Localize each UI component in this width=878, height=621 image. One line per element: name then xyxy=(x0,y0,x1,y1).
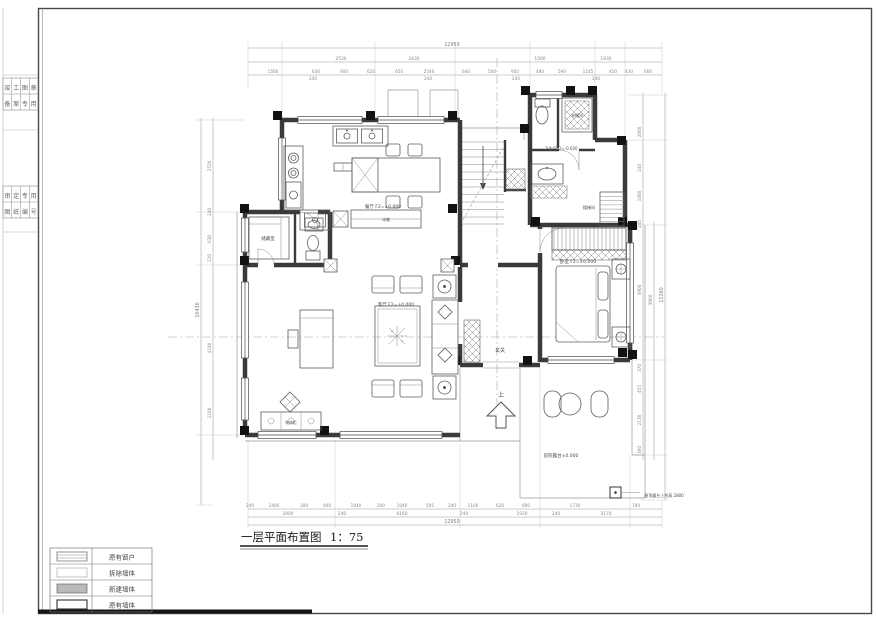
dim-text: 240 xyxy=(246,503,254,508)
stamp-char: 章 xyxy=(31,84,37,92)
stamp-char: 编 xyxy=(22,208,28,216)
dim-text: 505 xyxy=(426,503,434,508)
dim-text: 1930 xyxy=(516,511,527,517)
drawing-sheet: 竣工图章备案专用审定专用图纸编号 12950 2530263015001930 … xyxy=(0,0,878,621)
dim-text: 450 xyxy=(609,69,617,74)
dim-text: 240 xyxy=(637,220,642,228)
dim-text: 1145 xyxy=(583,69,594,74)
bed xyxy=(556,266,610,342)
dim-text: 300 xyxy=(300,503,308,508)
wardrobe xyxy=(552,228,626,250)
stair-main xyxy=(462,142,525,224)
terrace-table xyxy=(559,393,581,415)
dim-text: 900 xyxy=(340,69,348,74)
dim-text: 660 xyxy=(644,69,652,74)
shoe-cabinet xyxy=(464,320,480,362)
stamp-char: 专 xyxy=(22,192,28,200)
dim-text: 3900 xyxy=(637,284,642,295)
legend-label: 拆除墙体 xyxy=(109,569,136,578)
dim-top-total: 12950 xyxy=(444,42,459,48)
sofa xyxy=(432,300,458,374)
dim-text: 4160 xyxy=(396,511,407,517)
dim-text: 590 xyxy=(558,69,566,74)
room-label: 衣帽间 xyxy=(571,112,583,118)
dim-text: 3170 xyxy=(600,511,611,517)
stamp-char: 工 xyxy=(13,85,19,92)
room-labels: 餐厅 F2=±0.000客厅 F2=±0.000卧室 F2=±0.000卫生间F… xyxy=(261,112,684,498)
dim-text: 630 xyxy=(312,69,320,74)
room-label: 楼梯间 xyxy=(583,204,595,210)
legend-swatch-window xyxy=(57,552,87,561)
dim-text: 240 xyxy=(552,511,561,517)
bedroom-furniture xyxy=(552,228,630,347)
legend-swatch-existing-wall xyxy=(57,600,87,609)
stamp-char: 案 xyxy=(13,100,19,108)
legend-label: 原有窗户 xyxy=(109,553,135,562)
dim-text: 11260 xyxy=(659,287,665,302)
dim-text: 630 xyxy=(207,235,212,243)
legend-label: 原有墙体 xyxy=(109,601,136,610)
dim-top-chain: 1560630900620650254064050095048059011454… xyxy=(268,69,653,74)
dim-text: 3000 xyxy=(282,511,293,517)
legend: 原有窗户 拆除墙体 新建墙体 原有墙体 xyxy=(50,548,152,612)
dim-text: 455 xyxy=(637,385,642,393)
drawing-title: 一层平面布置图 1：75 xyxy=(240,530,368,549)
dim-text: 500 xyxy=(488,69,496,74)
living-room-furniture xyxy=(261,275,458,430)
stamp-char: 专 xyxy=(22,100,28,108)
dim-text: 480 xyxy=(536,69,544,74)
dim-text: 1040 xyxy=(351,503,362,508)
room-label: 上 xyxy=(498,391,504,399)
dim-text: 12950 xyxy=(444,519,459,525)
dim-text: 1930 xyxy=(600,56,611,62)
dim-text: 430 xyxy=(625,69,633,74)
room-label: 屋顶露台上柱高 2800 xyxy=(644,492,684,498)
stamp-char: 定 xyxy=(13,192,19,200)
dim-text: 2520 xyxy=(207,160,212,171)
room-label: 前院露台±0.000 xyxy=(544,452,579,459)
stamp-char: 用 xyxy=(31,193,37,200)
dim-text: 1730 xyxy=(570,503,581,508)
room-label: 储藏室 xyxy=(261,235,275,242)
dim-text: 940 xyxy=(323,503,331,508)
dim-text: 240 xyxy=(637,164,642,172)
stamp-char: 用 xyxy=(31,101,37,108)
dim-text: 10430 xyxy=(195,302,201,317)
dim-text: 120 xyxy=(207,254,212,262)
room-label: 玄关 xyxy=(495,347,505,354)
room-label: 卧室 F2=±0.000 xyxy=(560,258,596,265)
dim-bottom-chain: 2402400300940104024010405052401100620690… xyxy=(246,503,640,508)
dim-text: 2540 xyxy=(424,69,435,74)
dim-text: 2060 xyxy=(637,126,642,137)
dim-text: 240 xyxy=(512,76,520,81)
legend-swatch-demolish xyxy=(57,568,87,577)
room-label: 装饰柜 xyxy=(285,420,297,425)
room-label: 卫生间F2=-0.020 xyxy=(544,145,578,151)
stamp-char: 审 xyxy=(4,192,10,200)
dim-text: 690 xyxy=(522,503,530,508)
dim-text: 1100 xyxy=(468,503,479,508)
dim-text: 1100 xyxy=(207,407,212,418)
stamp-char: 图 xyxy=(22,85,28,92)
dim-text: 1560 xyxy=(268,69,279,74)
dim-text: 700 xyxy=(632,503,640,508)
room-label: 冰箱 xyxy=(382,217,390,222)
dim-bottom-total: 12950 xyxy=(444,519,459,525)
dim-text: 240 xyxy=(377,503,385,508)
dim-text: 370 xyxy=(637,364,642,372)
dim-text: 240 xyxy=(460,511,469,517)
dim-left-chain: 252024063012041901100 xyxy=(207,160,212,418)
opening-markers xyxy=(324,259,454,272)
dim-text: 2400 xyxy=(269,503,280,508)
dim-top-mid: 2530263015001930 xyxy=(335,56,611,62)
dim-text: 1040 xyxy=(397,503,408,508)
dim-right-total: 11260 xyxy=(659,287,665,302)
dim-text: 620 xyxy=(367,69,375,74)
dim-text: 360 xyxy=(637,446,642,454)
dim-text: 240 xyxy=(424,76,432,81)
dim-bottom-mid: 3000240416024019302403170 xyxy=(282,511,611,517)
dim-text: 2130 xyxy=(637,414,642,425)
dim-text: 2530 xyxy=(335,56,346,62)
bottom-thick-rule xyxy=(38,610,312,614)
stamp-char: 号 xyxy=(31,209,37,216)
stamp-char: 图 xyxy=(4,209,10,216)
dim-text: 240 xyxy=(338,511,347,517)
storage-bath-furniture xyxy=(249,217,323,260)
legend-swatch-new-wall xyxy=(57,584,87,593)
dim-text: 620 xyxy=(496,503,504,508)
dim-text: 240 xyxy=(592,76,600,81)
stamp-char: 竣 xyxy=(4,84,10,92)
legend-label: 新建墙体 xyxy=(109,585,136,594)
floorplan-canvas: 竣工图章备案专用审定专用图纸编号 12950 2530263015001930 … xyxy=(0,0,878,621)
drawing-scale-text: 1：75 xyxy=(330,530,363,544)
dim-text: 1500 xyxy=(534,56,545,62)
stamp-char: 备 xyxy=(4,100,10,108)
dim-text: 640 xyxy=(462,69,470,74)
entry-arrow xyxy=(487,402,515,428)
dim-text: 1060 xyxy=(637,190,642,201)
dim-text: 4190 xyxy=(207,342,212,353)
dim-text: 240 xyxy=(207,208,212,216)
dim-text: 12950 xyxy=(444,42,459,48)
terrace xyxy=(544,391,640,498)
drawing-title-text: 一层平面布置图 xyxy=(241,530,322,544)
dim-text: 650 xyxy=(395,69,403,74)
dim-left-total: 10430 xyxy=(195,302,201,317)
dim-top-small: 240240240240 xyxy=(309,76,600,81)
dim-right-chain: 2060240106024039003704552130360 xyxy=(637,126,642,454)
dim-right-mid: 3900 xyxy=(648,294,654,305)
dim-text: 240 xyxy=(309,76,317,81)
stamp-char: 纸 xyxy=(13,208,19,216)
room-label: 餐厅 F2=±0.000 xyxy=(365,203,401,210)
dim-text: 2630 xyxy=(408,56,419,62)
entry xyxy=(464,320,519,428)
room-label: 客厅 F2=±0.000 xyxy=(378,301,414,308)
dim-text: 3900 xyxy=(648,294,654,305)
dim-text: 240 xyxy=(448,503,456,508)
dim-text: 950 xyxy=(511,69,519,74)
